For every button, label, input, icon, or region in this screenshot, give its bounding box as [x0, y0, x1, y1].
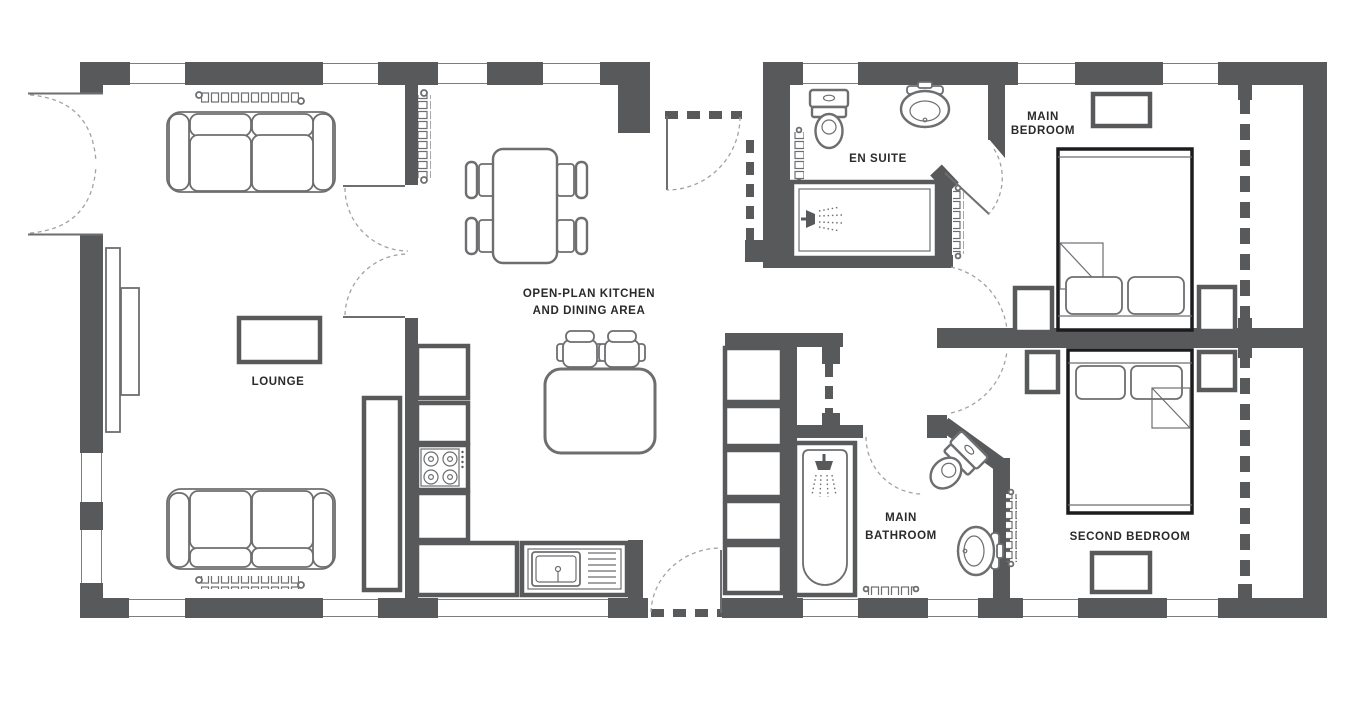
french-door-opening [80, 93, 103, 235]
wall-lounge-kitchen-top [405, 85, 418, 185]
tall-cabinet [364, 398, 400, 590]
window [803, 598, 858, 618]
second-bed [1068, 350, 1192, 513]
stool-chair [599, 331, 645, 367]
dining-chair [466, 218, 477, 254]
main-bedroom-label-line2: BEDROOM [1011, 125, 1075, 137]
kitchen-label-line2: AND DINING AREA [533, 305, 646, 317]
nightstand [1199, 352, 1235, 390]
entrance-door [665, 115, 742, 190]
nightstand [1027, 352, 1058, 392]
sofa-top [167, 112, 335, 192]
stove [417, 445, 468, 490]
bathtub [795, 443, 855, 595]
window [438, 62, 487, 85]
storage-shelf [725, 501, 782, 541]
pillow [1128, 277, 1184, 314]
nightstand [1015, 288, 1052, 332]
window [803, 62, 858, 85]
pillow [1066, 277, 1122, 314]
wall-bathroom-top [725, 333, 843, 347]
radiator [953, 186, 964, 259]
window [323, 62, 378, 85]
wardrobe [1093, 94, 1150, 126]
dining-chair [576, 162, 587, 198]
window [130, 62, 185, 85]
lounge-double-doors [343, 186, 408, 317]
wall-entry-column [618, 62, 650, 133]
storage-shelf [725, 545, 782, 593]
radiator [864, 584, 919, 595]
dining-chair [576, 218, 587, 254]
window [1018, 62, 1075, 85]
main-bedroom-door-arc [951, 267, 1007, 330]
wall-kitchen-stub [628, 540, 643, 598]
cabinet [417, 346, 468, 398]
window [1163, 62, 1218, 85]
storage-shelf [725, 406, 782, 446]
wall-ensuite-left [763, 85, 790, 262]
ensuite-toilet [810, 90, 848, 148]
second-bedroom-door-arc [951, 351, 1007, 413]
storage-shelf [725, 348, 782, 402]
main-bathroom-label-line2: BATHROOM [865, 530, 937, 542]
radiator [1006, 490, 1017, 567]
dining-table [493, 149, 557, 263]
wall-ensuite-right [988, 85, 1005, 140]
entrance-opening [650, 62, 763, 85]
window [1167, 598, 1218, 618]
second-bedroom-label: SECOND BEDROOM [1070, 531, 1191, 543]
breakfast-table [545, 369, 655, 453]
window [323, 598, 378, 618]
cabinet [417, 493, 468, 540]
pillow [1131, 366, 1182, 399]
cabinet [417, 543, 517, 595]
dining-chair [466, 162, 477, 198]
ensuite-shower [792, 182, 937, 258]
bathroom-door-arc [866, 437, 923, 494]
sofa-bottom [167, 489, 335, 569]
dining-set [466, 149, 587, 263]
storage-shelf [725, 450, 782, 497]
radiator [196, 92, 304, 105]
radiator [794, 128, 804, 185]
kitchen-label-line1: OPEN-PLAN KITCHEN [523, 288, 655, 300]
window [928, 598, 978, 618]
radiator [418, 90, 431, 183]
breakfast-set [545, 331, 655, 453]
coffee-table [239, 318, 320, 362]
lounge-label: LOUNGE [252, 376, 305, 388]
tv-unit [106, 248, 139, 432]
main-bathroom-label-line1: MAIN [885, 512, 917, 524]
window [543, 62, 600, 85]
floor-plan-canvas: LOUNGE OPEN-PLAN KITCHEN AND DINING AREA… [0, 0, 1357, 705]
window [438, 598, 608, 618]
window [129, 598, 185, 618]
nightstand [1199, 287, 1235, 331]
ensuite-basin [901, 82, 949, 127]
main-bed [1058, 149, 1192, 330]
main-bedroom-label-line1: MAIN [1027, 111, 1059, 123]
hall-storage [725, 348, 782, 593]
ensuite-label: EN SUITE [849, 153, 907, 165]
stool-chair [557, 331, 603, 367]
cabinet [417, 403, 468, 443]
window [80, 453, 103, 502]
floor-plan: LOUNGE OPEN-PLAN KITCHEN AND DINING AREA… [0, 0, 1357, 705]
wardrobe [1092, 553, 1150, 592]
radiator [196, 576, 304, 589]
window [80, 530, 103, 583]
bathroom-basin [958, 527, 1003, 575]
window [1023, 598, 1078, 618]
sink-unit [522, 543, 627, 595]
pillow [1076, 366, 1125, 399]
